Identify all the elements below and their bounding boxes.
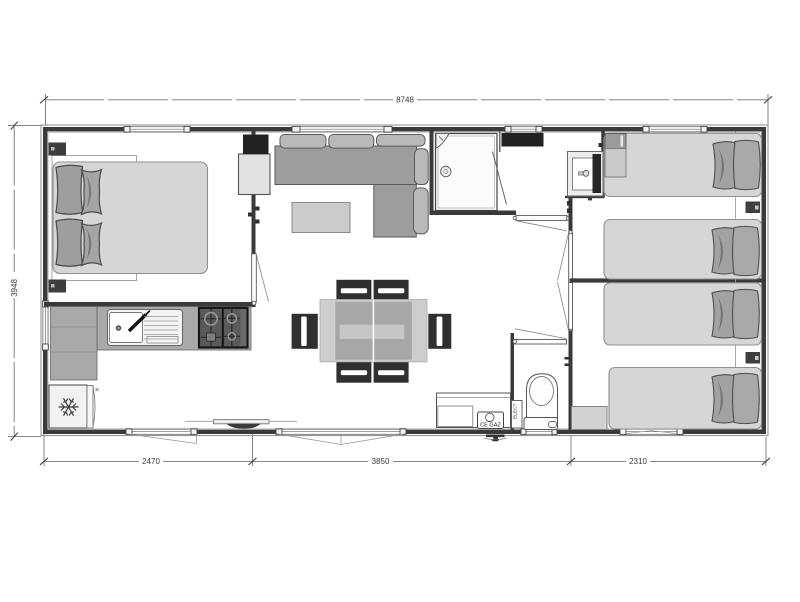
svg-text:2310: 2310 <box>629 457 647 466</box>
svg-text:ELECT: ELECT <box>513 403 519 419</box>
svg-text:2470: 2470 <box>142 457 160 466</box>
svg-text:3948: 3948 <box>10 279 19 297</box>
svg-text:CE GAZ: CE GAZ <box>480 423 501 429</box>
svg-text:3850: 3850 <box>372 457 390 466</box>
svg-text:8748: 8748 <box>396 96 414 105</box>
